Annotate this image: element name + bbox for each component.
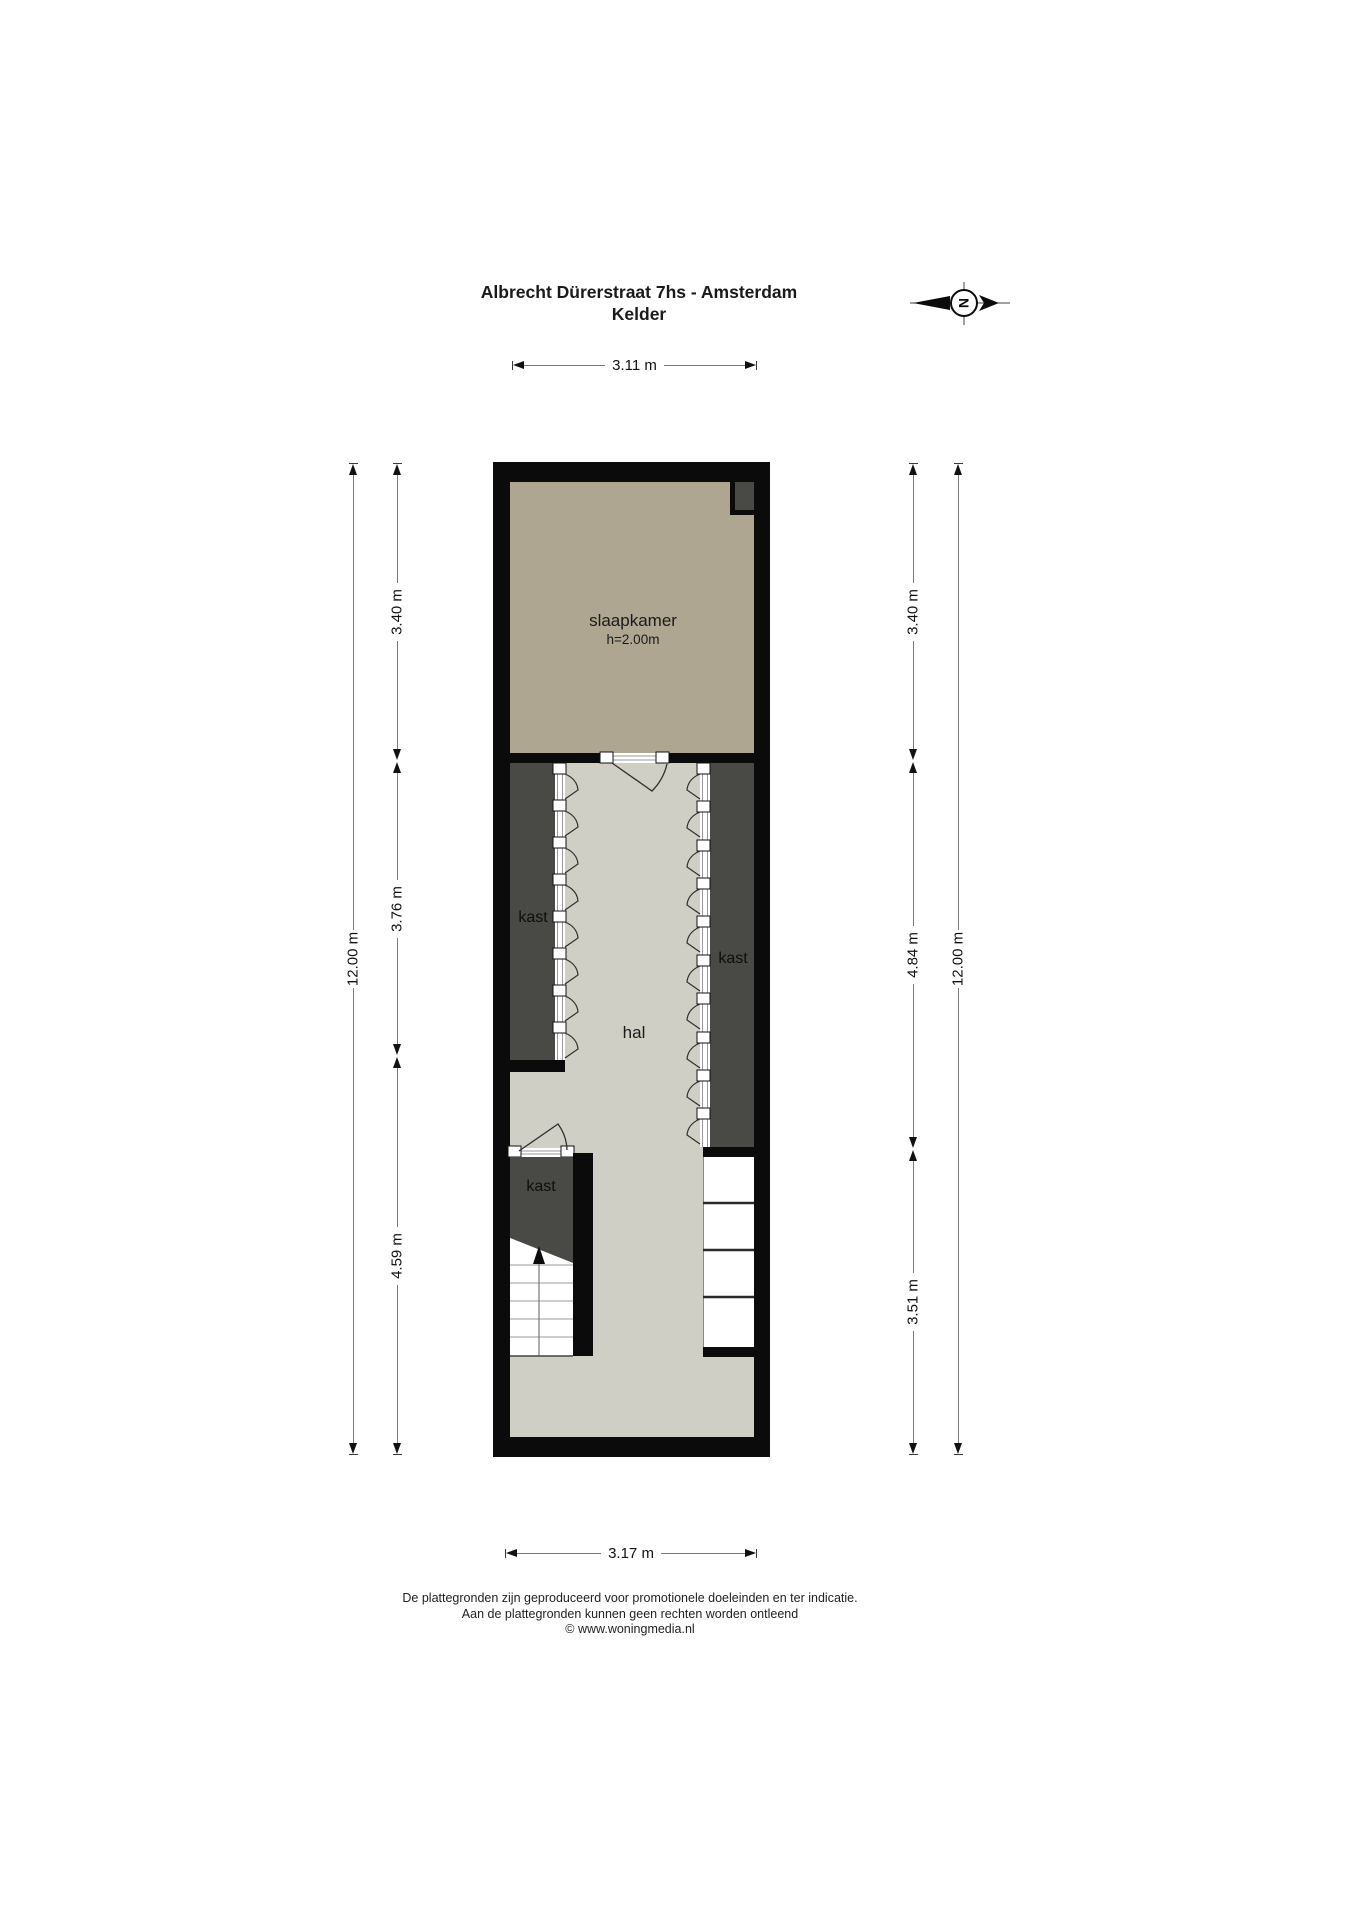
dim-arrow-up-icon <box>909 762 917 773</box>
shelf-column <box>703 1157 754 1347</box>
dim-arrow-left-icon <box>506 1549 517 1557</box>
dim-arrow-down-icon <box>393 1443 401 1454</box>
duct <box>735 482 754 510</box>
dim-arrow-up-icon <box>393 762 401 773</box>
dim-right-3-label: 3.51 m <box>902 1273 924 1331</box>
dim-right-2-label: 4.84 m <box>902 926 924 984</box>
stair-wall <box>573 1153 593 1356</box>
dim-right-total: 12.00 m <box>947 463 969 1455</box>
dim-arrow-down-icon <box>393 749 401 760</box>
compass-north-icon: N <box>905 278 1015 328</box>
slaapkamer-label: slaapkamer <box>589 611 677 630</box>
dim-line <box>353 475 354 930</box>
footer-line-1: De plattegronden zijn geproduceerd voor … <box>302 1591 958 1607</box>
dim-arrow-left-icon <box>513 361 524 369</box>
dim-line <box>397 475 398 583</box>
dim-arrow-down-icon <box>393 1044 401 1055</box>
dim-left-2: 3.76 m <box>386 762 408 1055</box>
dim-tick <box>393 1454 402 1455</box>
dim-right-1-label: 3.40 m <box>902 583 924 641</box>
kast-right-endwall <box>703 1147 754 1157</box>
door-threshold <box>518 1148 564 1157</box>
dim-arrow-down-icon <box>909 1137 917 1148</box>
dim-line <box>353 988 354 1443</box>
plan-title-floor: Kelder <box>339 303 939 325</box>
dim-line <box>913 773 914 926</box>
door-post <box>600 752 613 763</box>
dim-line <box>397 1285 398 1444</box>
dim-tick <box>756 361 757 370</box>
floorplan-drawing: slaapkamer h=2.00m kast kast hal kast <box>493 462 770 1457</box>
dim-arrow-right-icon <box>745 1549 756 1557</box>
plan-title: Albrecht Dürerstraat 7hs - Amsterdam Kel… <box>339 281 939 325</box>
shelf-endwall <box>703 1347 754 1357</box>
dim-line <box>913 641 914 749</box>
dim-bottom: 3.17 m <box>505 1544 757 1562</box>
dim-arrow-up-icon <box>909 464 917 475</box>
footer-line-2: Aan de plattegronden kunnen geen rechten… <box>302 1607 958 1623</box>
dim-arrow-right-icon <box>745 361 756 369</box>
dim-line <box>913 1161 914 1273</box>
footer-disclaimer: De plattegronden zijn geproduceerd voor … <box>302 1591 958 1638</box>
compass-north-label: N <box>956 298 972 308</box>
door-post <box>656 752 669 763</box>
slaapkamer-height-note: h=2.00m <box>607 632 660 647</box>
hal-label: hal <box>623 1023 646 1042</box>
dim-left-1: 3.40 m <box>386 463 408 760</box>
door-post <box>508 1146 521 1157</box>
dim-left-total-label: 12.00 m <box>342 930 364 988</box>
dim-arrow-up-icon <box>909 1150 917 1161</box>
dim-line <box>664 365 745 366</box>
dim-line <box>958 988 959 1443</box>
dim-line <box>524 365 605 366</box>
dim-left-2-label: 3.76 m <box>386 880 408 938</box>
dim-line <box>661 1553 745 1554</box>
dim-line <box>397 641 398 749</box>
dim-line <box>913 1331 914 1443</box>
dim-arrow-up-icon <box>349 464 357 475</box>
dim-arrow-down-icon <box>909 749 917 760</box>
footer-copyright: © www.woningmedia.nl <box>302 1622 958 1638</box>
dim-line <box>958 475 959 930</box>
dim-arrow-up-icon <box>393 464 401 475</box>
kast-left-label: kast <box>518 909 548 926</box>
dim-arrow-up-icon <box>393 1057 401 1068</box>
dim-right-3: 3.51 m <box>902 1150 924 1455</box>
dim-line <box>517 1553 601 1554</box>
dim-tick <box>954 1454 963 1455</box>
dim-bottom-label: 3.17 m <box>601 1545 661 1562</box>
dim-arrow-down-icon <box>349 1443 357 1454</box>
dim-line <box>397 938 398 1045</box>
plan-title-address: Albrecht Dürerstraat 7hs - Amsterdam <box>339 281 939 303</box>
dim-right-total-label: 12.00 m <box>947 930 969 988</box>
dim-top: 3.11 m <box>512 356 757 374</box>
dim-line <box>397 1068 398 1227</box>
dim-arrow-up-icon <box>954 464 962 475</box>
dim-right-1: 3.40 m <box>902 463 924 760</box>
door-threshold <box>610 753 662 763</box>
dim-right-2: 4.84 m <box>902 762 924 1148</box>
dim-line <box>913 984 914 1137</box>
dim-left-total: 12.00 m <box>342 463 364 1455</box>
duct-border <box>730 510 754 515</box>
dim-left-3-label: 4.59 m <box>386 1227 408 1285</box>
dim-left-3: 4.59 m <box>386 1057 408 1455</box>
dim-line <box>913 475 914 583</box>
dim-tick <box>349 1454 358 1455</box>
dim-tick <box>756 1549 757 1558</box>
dim-line <box>397 773 398 880</box>
dim-left-1-label: 3.40 m <box>386 583 408 641</box>
kast-right-label: kast <box>718 950 748 967</box>
dim-arrow-down-icon <box>909 1443 917 1454</box>
kast-left-endwall <box>510 1060 565 1072</box>
dim-tick <box>909 1454 918 1455</box>
dim-top-label: 3.11 m <box>605 357 664 374</box>
kast-lower-label: kast <box>526 1178 556 1195</box>
dim-arrow-down-icon <box>954 1443 962 1454</box>
floorplan-page: Albrecht Dürerstraat 7hs - Amsterdam Kel… <box>0 0 1358 1920</box>
